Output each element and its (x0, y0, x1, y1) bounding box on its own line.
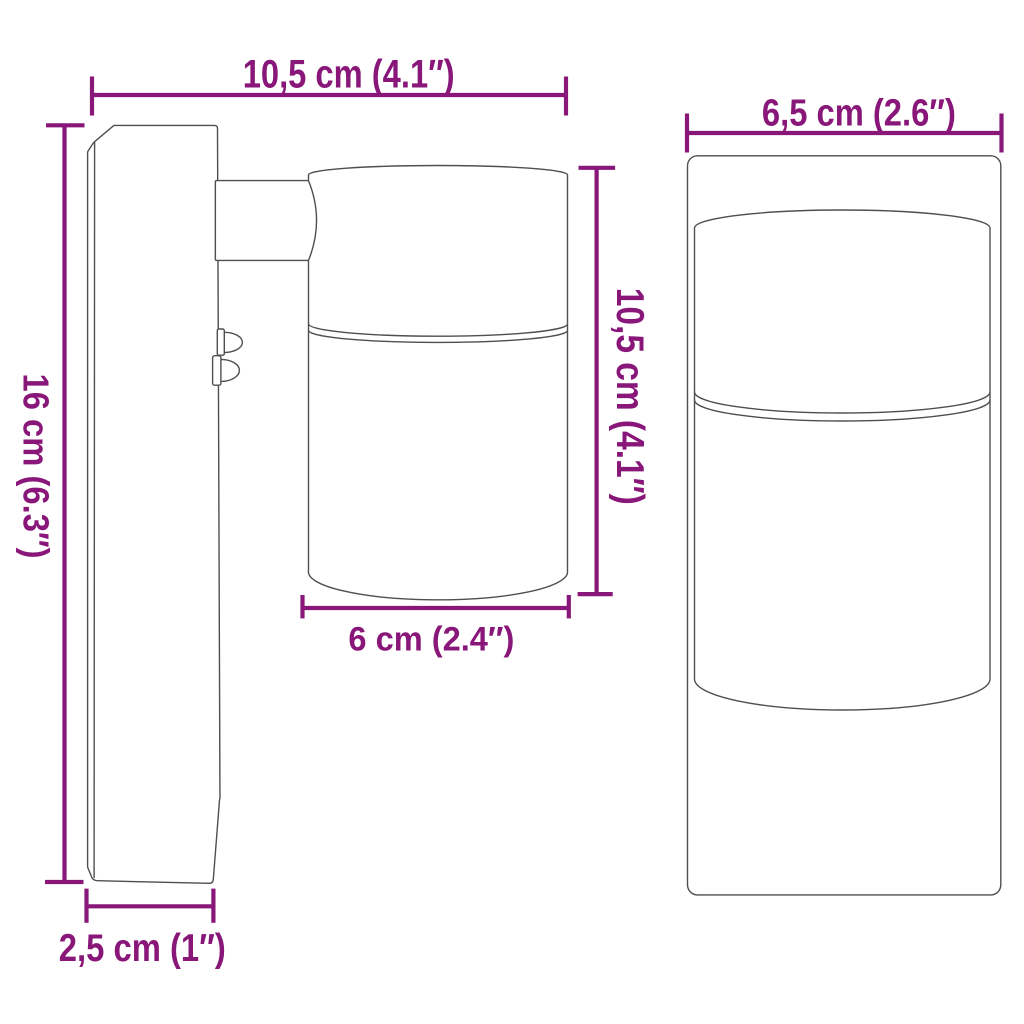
svg-text:10,5 cm (4.1″): 10,5 cm (4.1″) (243, 53, 455, 97)
svg-text:6,5 cm (2.6″): 6,5 cm (2.6″) (762, 92, 956, 134)
svg-text:6 cm (2.4″): 6 cm (2.4″) (348, 621, 514, 659)
svg-text:10,5 cm (4.1″): 10,5 cm (4.1″) (608, 288, 651, 505)
svg-text:2,5 cm (1″): 2,5 cm (1″) (59, 927, 226, 970)
svg-text:16 cm (6.3″): 16 cm (6.3″) (16, 374, 57, 559)
